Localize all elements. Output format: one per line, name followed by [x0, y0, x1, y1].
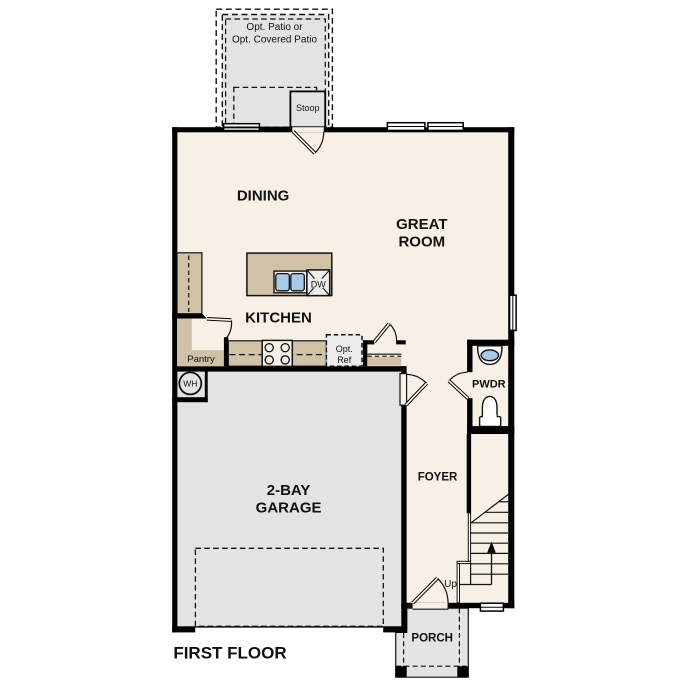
svg-text:DINING: DINING: [237, 187, 290, 204]
svg-text:Ref: Ref: [337, 355, 352, 365]
svg-text:PORCH: PORCH: [411, 633, 453, 645]
svg-text:GARAGE: GARAGE: [256, 500, 322, 517]
svg-text:ROOM: ROOM: [398, 233, 445, 250]
svg-text:FOYER: FOYER: [418, 471, 458, 483]
svg-text:2-BAY: 2-BAY: [267, 482, 311, 499]
svg-text:DW: DW: [311, 279, 326, 289]
svg-text:Stoop: Stoop: [296, 103, 320, 113]
svg-text:Opt. Covered Patio: Opt. Covered Patio: [232, 34, 317, 45]
svg-text:KITCHEN: KITCHEN: [245, 309, 312, 326]
svg-text:PWDR: PWDR: [472, 378, 506, 390]
svg-text:Opt.: Opt.: [336, 344, 353, 354]
svg-text:WH: WH: [183, 379, 197, 389]
svg-text:Pantry: Pantry: [187, 354, 215, 365]
svg-text:Opt. Patio or: Opt. Patio or: [246, 22, 303, 33]
svg-text:FIRST FLOOR: FIRST FLOOR: [173, 643, 286, 662]
svg-text:Up: Up: [444, 579, 457, 590]
svg-text:GREAT: GREAT: [396, 216, 447, 233]
